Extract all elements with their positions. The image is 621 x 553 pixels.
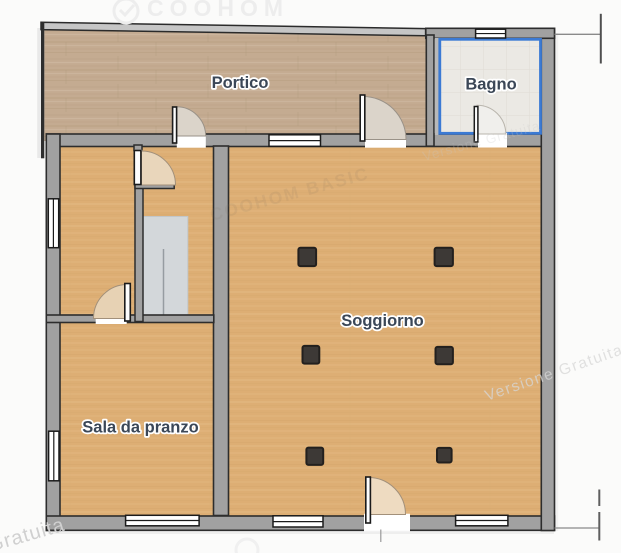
svg-text:Bagno: Bagno — [465, 76, 516, 94]
svg-text:Sala da pranzo: Sala da pranzo — [82, 419, 198, 437]
svg-text:COOHOM: COOHOM — [147, 0, 289, 21]
svg-text:Soggiorno: Soggiorno — [341, 312, 423, 330]
svg-text:Portico: Portico — [212, 74, 269, 92]
